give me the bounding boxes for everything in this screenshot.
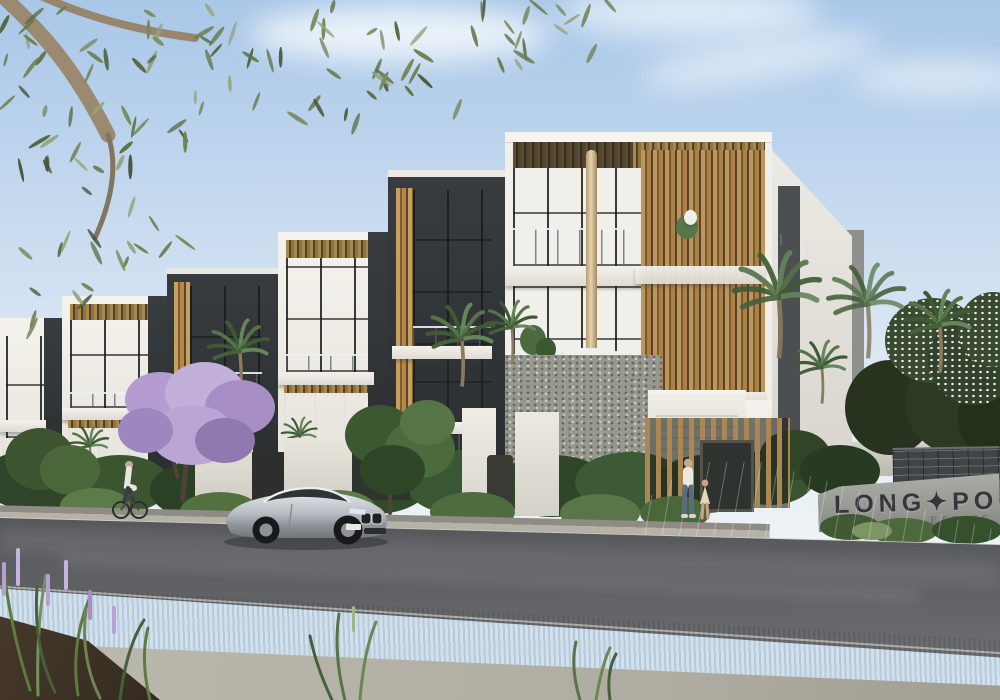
side-window (806, 242, 834, 259)
timber-fin (396, 188, 413, 440)
soffit-timber (286, 240, 368, 258)
balcony-ceiling-timber (284, 385, 368, 393)
balcony-slab (392, 346, 492, 359)
parapet (167, 268, 280, 274)
balcony-balustrade (413, 326, 491, 348)
purple-tree-canopy (195, 418, 255, 463)
car-plate (346, 524, 361, 530)
pedestrians (676, 456, 716, 526)
silver-coupe (218, 466, 398, 554)
balcony-plant-white (684, 210, 697, 225)
cyclist-torso (127, 469, 134, 488)
balcony-slab-mid-wrap (635, 266, 765, 284)
blade-wall (515, 412, 559, 516)
cloud (250, 6, 550, 62)
purple-tree-canopy (118, 408, 173, 453)
scene: LONG✦POC ESTATE (0, 0, 1000, 700)
parapet (388, 170, 507, 177)
adult-pedestrian (681, 459, 696, 518)
side-wall-dark-stripe (778, 186, 800, 454)
child-pedestrian (700, 480, 710, 518)
cyclist (112, 458, 148, 524)
car-intake (364, 528, 386, 534)
balcony-balustrade (286, 354, 368, 374)
tree-canopy (400, 400, 455, 445)
window-glass (413, 190, 491, 345)
side-window (780, 234, 789, 245)
soffit-shadow (513, 142, 633, 168)
balcony-slab (278, 372, 374, 385)
soffit-timber (70, 304, 148, 320)
car-grille (372, 513, 382, 524)
